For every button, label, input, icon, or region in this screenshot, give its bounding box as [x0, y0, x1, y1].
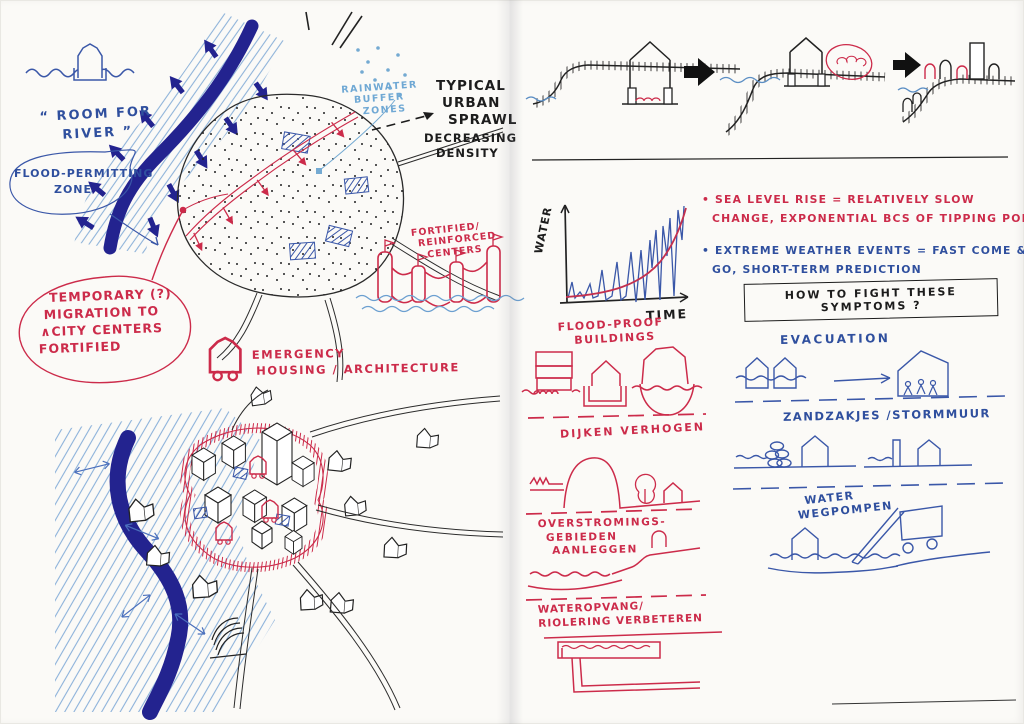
- urban-sprawl-line3: SPRAWL: [448, 112, 517, 129]
- symptoms-box: HOW TO FIGHT THESE SYMPTOMS ?: [744, 278, 999, 322]
- evacuation-sketch: [735, 351, 1005, 402]
- density-line1: DECREASING: [424, 131, 517, 146]
- overstromings-line1: OVERSTROMINGS-: [538, 516, 667, 532]
- floating-house-icon: [26, 44, 134, 80]
- dijken-sketch: [526, 458, 700, 514]
- flood-proof-sketches: [522, 347, 706, 418]
- wateropvang-label: WATEROPVANG/ RIOLERING VERBETEREN: [538, 598, 704, 631]
- extreme-weather-note: • EXTREME WEATHER EVENTS = FAST COME & G…: [702, 241, 1024, 280]
- symptoms-box-text: HOW TO FIGHT THESE SYMPTOMS ?: [785, 285, 957, 314]
- sketchbook-spread: “ ROOM FOR RIVER ” FLOOD-PERMITTING ZONE…: [0, 0, 1024, 724]
- flood-proof-label: FLOOD-PROOF BUILDINGS: [557, 315, 664, 349]
- urban-sprawl-line1: TYPICAL: [436, 78, 517, 95]
- density-label: DECREASING DENSITY: [424, 131, 517, 161]
- flood-zone-label: FLOOD-PERMITTING ZONE: [14, 166, 132, 198]
- section-divider: [532, 157, 1008, 160]
- bottom-line: [832, 700, 1016, 704]
- sea-level-line1: • SEA LEVEL RISE = RELATIVELY SLOW: [702, 190, 1024, 209]
- urban-sprawl-line2: URBAN: [442, 95, 517, 112]
- migration-label: TEMPORARY (?) MIGRATION TO ∧CITY CENTERS…: [37, 286, 174, 358]
- city-zone: [178, 94, 404, 297]
- water-time-graph: [560, 205, 688, 303]
- wateropvang-sketch: [544, 632, 722, 692]
- overstromings-line3: AANLEGGEN: [552, 543, 667, 559]
- sea-level-line2: CHANGE, EXPONENTIAL BCS OF TIPPING POINT…: [712, 209, 1024, 228]
- flood-zone-line2: ZONE: [14, 182, 132, 198]
- sequence-arrow-2: [893, 52, 921, 78]
- pen-strokes: [306, 12, 362, 48]
- rainwater-label: RAINWATER BUFFER ZONES: [341, 79, 420, 118]
- evacuation-text: EVACUATION: [780, 330, 891, 349]
- cliff-panel-3: [898, 43, 1015, 122]
- emergency-label: EMERGENCY HOUSING / ARCHITECTURE: [252, 344, 460, 379]
- room-for-river-label: “ ROOM FOR RIVER ”: [39, 103, 153, 147]
- urban-sprawl-label: TYPICAL URBAN SPRAWL: [436, 78, 517, 129]
- density-line2: DENSITY: [436, 146, 517, 161]
- evacuation-label: EVACUATION: [780, 330, 891, 349]
- extreme-line1: • EXTREME WEATHER EVENTS = FAST COME &: [702, 241, 1024, 260]
- emergency-house-icon: [210, 338, 240, 380]
- sequence-arrow-1: [684, 58, 715, 86]
- flood-zone-line1: FLOOD-PERMITTING: [14, 166, 132, 182]
- cliff-panel-2: [720, 38, 885, 132]
- extreme-line2: GO, SHORT-TERM PREDICTION: [712, 260, 1024, 279]
- overstromings-label: OVERSTROMINGS- GEBIEDEN AANLEGGEN: [538, 516, 667, 559]
- zandzakjes-sketch: [733, 436, 1008, 489]
- sea-level-note: • SEA LEVEL RISE = RELATIVELY SLOW CHANG…: [702, 190, 1024, 229]
